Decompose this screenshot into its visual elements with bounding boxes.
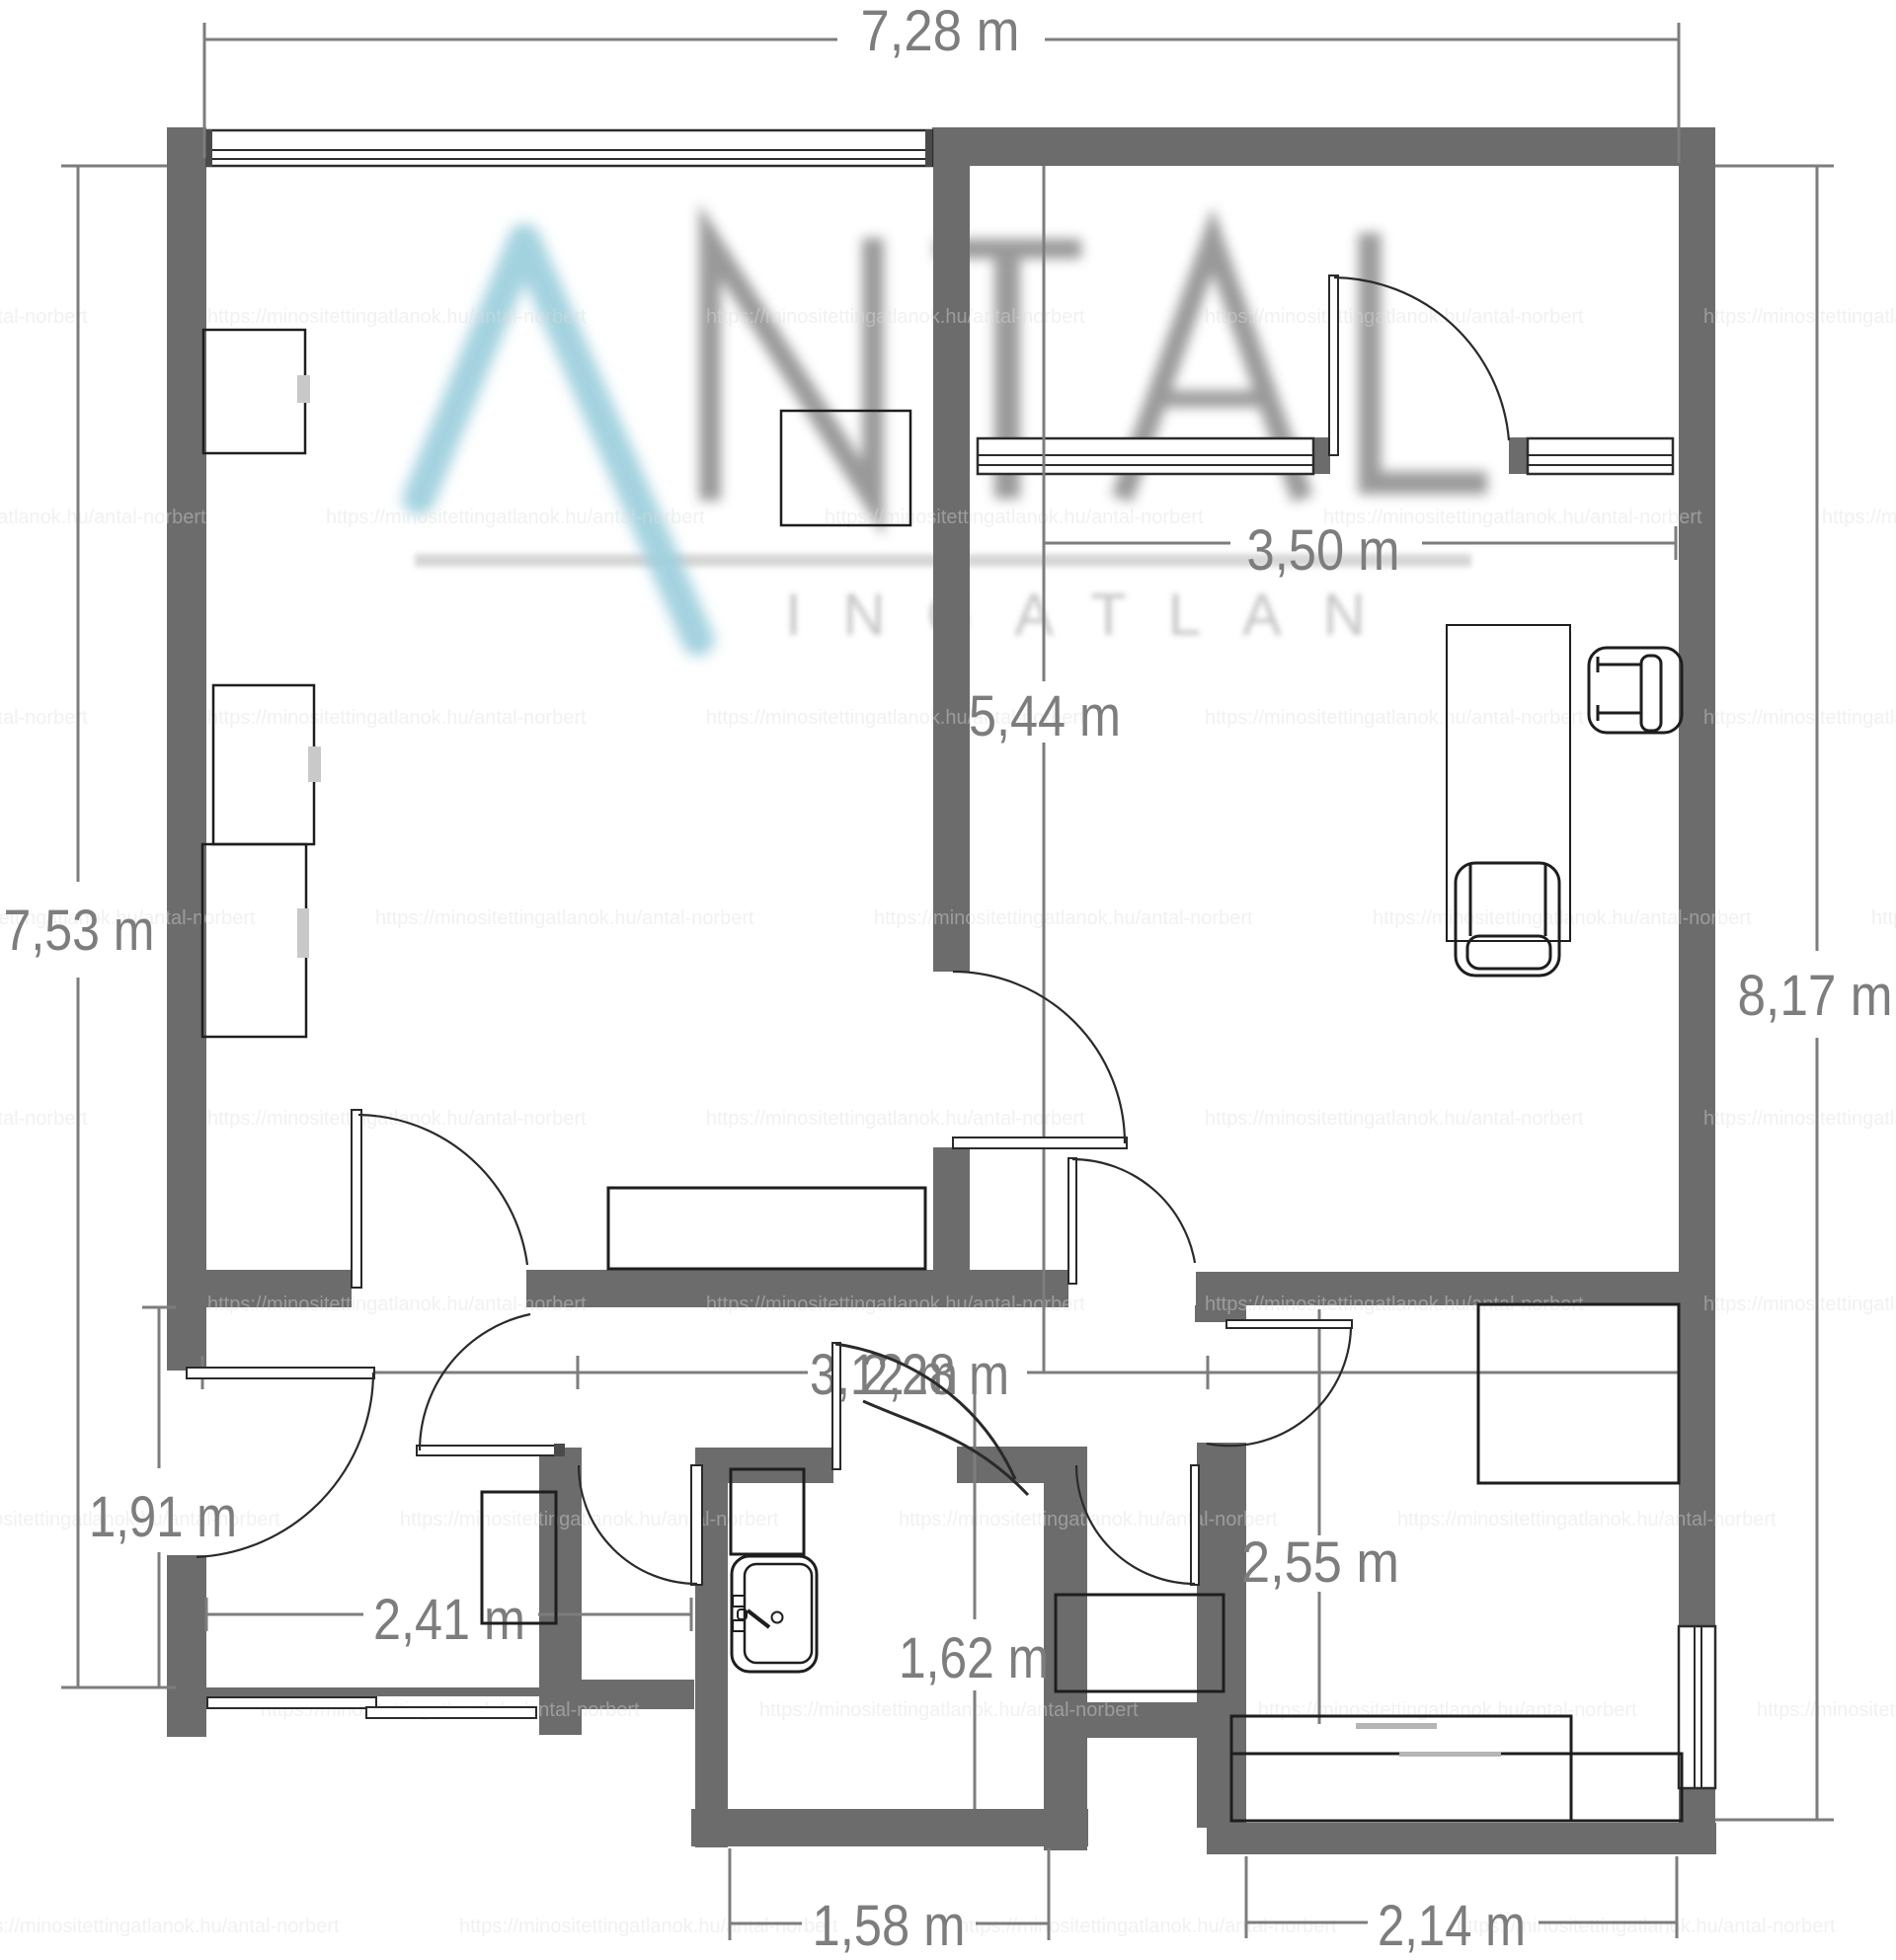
svg-text:https://minositettingatlanok.h: https://minositettingatlanok.hu/antal-no… xyxy=(459,1916,838,1937)
svg-text:3,50 m: 3,50 m xyxy=(1247,518,1400,583)
svg-text:7,53 m: 7,53 m xyxy=(4,899,155,963)
svg-text:https://minositettingatlanok.h: https://minositettingatlanok.hu/antal-no… xyxy=(1703,306,1896,328)
svg-text:https://minositettingatlanok.h: https://minositettingatlanok.hu/antal-no… xyxy=(759,1699,1139,1721)
svg-text:https://minositettingatlanok.h: https://minositettingatlanok.hu/antal-no… xyxy=(207,707,587,729)
svg-text:1,91 m: 1,91 m xyxy=(89,1485,237,1549)
svg-text:https://minositettingatlanok.h: https://minositettingatlanok.hu/antal-no… xyxy=(706,1108,1085,1130)
svg-text:https://minositettingatlanok.h: https://minositettingatlanok.hu/antal-no… xyxy=(0,507,206,528)
svg-text:https://minositettingatlanok.h: https://minositettingatlanok.hu/antal-no… xyxy=(1757,1699,1896,1721)
svg-text:https://minositettingatlanok.h: https://minositettingatlanok.hu/antal-no… xyxy=(1373,907,1752,929)
svg-text:https://minositettingatlanok.h: https://minositettingatlanok.hu/antal-no… xyxy=(400,1509,779,1530)
svg-text:2,41 m: 2,41 m xyxy=(373,1588,525,1652)
svg-text:https://minositettingatlanok.h: https://minositettingatlanok.hu/antal-no… xyxy=(1703,707,1896,729)
svg-text:https://minositettingatlanok.h: https://minositettingatlanok.hu/antal-no… xyxy=(326,507,705,528)
svg-text:2,55 m: 2,55 m xyxy=(1241,1530,1399,1595)
svg-text:https://minositettingatlanok.h: https://minositettingatlanok.hu/antal-no… xyxy=(1703,1294,1896,1315)
svg-text:https://minositettingatlanok.h: https://minositettingatlanok.hu/antal-no… xyxy=(0,707,88,729)
svg-text:https://minositettingatlanok.h: https://minositettingatlanok.hu/antal-no… xyxy=(706,1294,1085,1315)
svg-text:https://minositettingatlanok.h: https://minositettingatlanok.hu/antal-no… xyxy=(874,907,1253,929)
svg-text:https://minositettingatlanok.h: https://minositettingatlanok.hu/antal-no… xyxy=(207,1294,587,1315)
svg-text:https://minositettingatlanok.h: https://minositettingatlanok.hu/antal-no… xyxy=(0,1108,88,1130)
svg-text:INGATLAN: INGATLAN xyxy=(785,582,1409,648)
svg-text:https://minositettingatlanok.h: https://minositettingatlanok.hu/antal-no… xyxy=(706,306,1085,328)
svg-text:7,28 m: 7,28 m xyxy=(861,0,1020,63)
svg-text:https://minositettingatlanok.h: https://minositettingatlanok.hu/antal-no… xyxy=(1703,1108,1896,1130)
svg-text:https://minositettingatlanok.h: https://minositettingatlanok.hu/antal-no… xyxy=(0,306,88,328)
svg-text:1,58 m: 1,58 m xyxy=(813,1894,966,1958)
svg-text:https://minositettingatlanok.h: https://minositettingatlanok.hu/antal-no… xyxy=(958,1916,1337,1937)
svg-text:https://minositettingatlanok.h: https://minositettingatlanok.hu/antal-no… xyxy=(899,1509,1278,1530)
svg-text:https://minositettingatlanok.h: https://minositettingatlanok.hu/antal-no… xyxy=(1205,707,1584,729)
svg-text:https://minositettingatlanok.h: https://minositettingatlanok.hu/antal-no… xyxy=(375,907,754,929)
svg-text:8,17 m: 8,17 m xyxy=(1738,964,1893,1028)
svg-text:https://minositettingatlanok.h: https://minositettingatlanok.hu/antal-no… xyxy=(1822,507,1896,528)
svg-text:2,14 m: 2,14 m xyxy=(1378,1894,1526,1958)
svg-text:https://minositettingatlanok.h: https://minositettingatlanok.hu/antal-no… xyxy=(1397,1509,1777,1530)
svg-text:2,28 m: 2,28 m xyxy=(861,1343,1009,1407)
svg-text:https://minositettingatlanok.h: https://minositettingatlanok.hu/antal-no… xyxy=(1871,907,1896,929)
svg-text:https://minositettingatlanok.h: https://minositettingatlanok.hu/antal-no… xyxy=(1205,1108,1584,1130)
svg-text:https://minositettingatlanok.h: https://minositettingatlanok.hu/antal-no… xyxy=(1205,306,1584,328)
svg-text:https://minositettingatlanok.h: https://minositettingatlanok.hu/antal-no… xyxy=(1258,1699,1637,1721)
svg-text:1,62 m: 1,62 m xyxy=(899,1626,1049,1690)
svg-text:https://minositettingatlanok.h: https://minositettingatlanok.hu/antal-no… xyxy=(0,1916,340,1937)
svg-text:5,44 m: 5,44 m xyxy=(969,684,1121,748)
svg-text:https://minositettingatlanok.h: https://minositettingatlanok.hu/antal-no… xyxy=(207,306,587,328)
